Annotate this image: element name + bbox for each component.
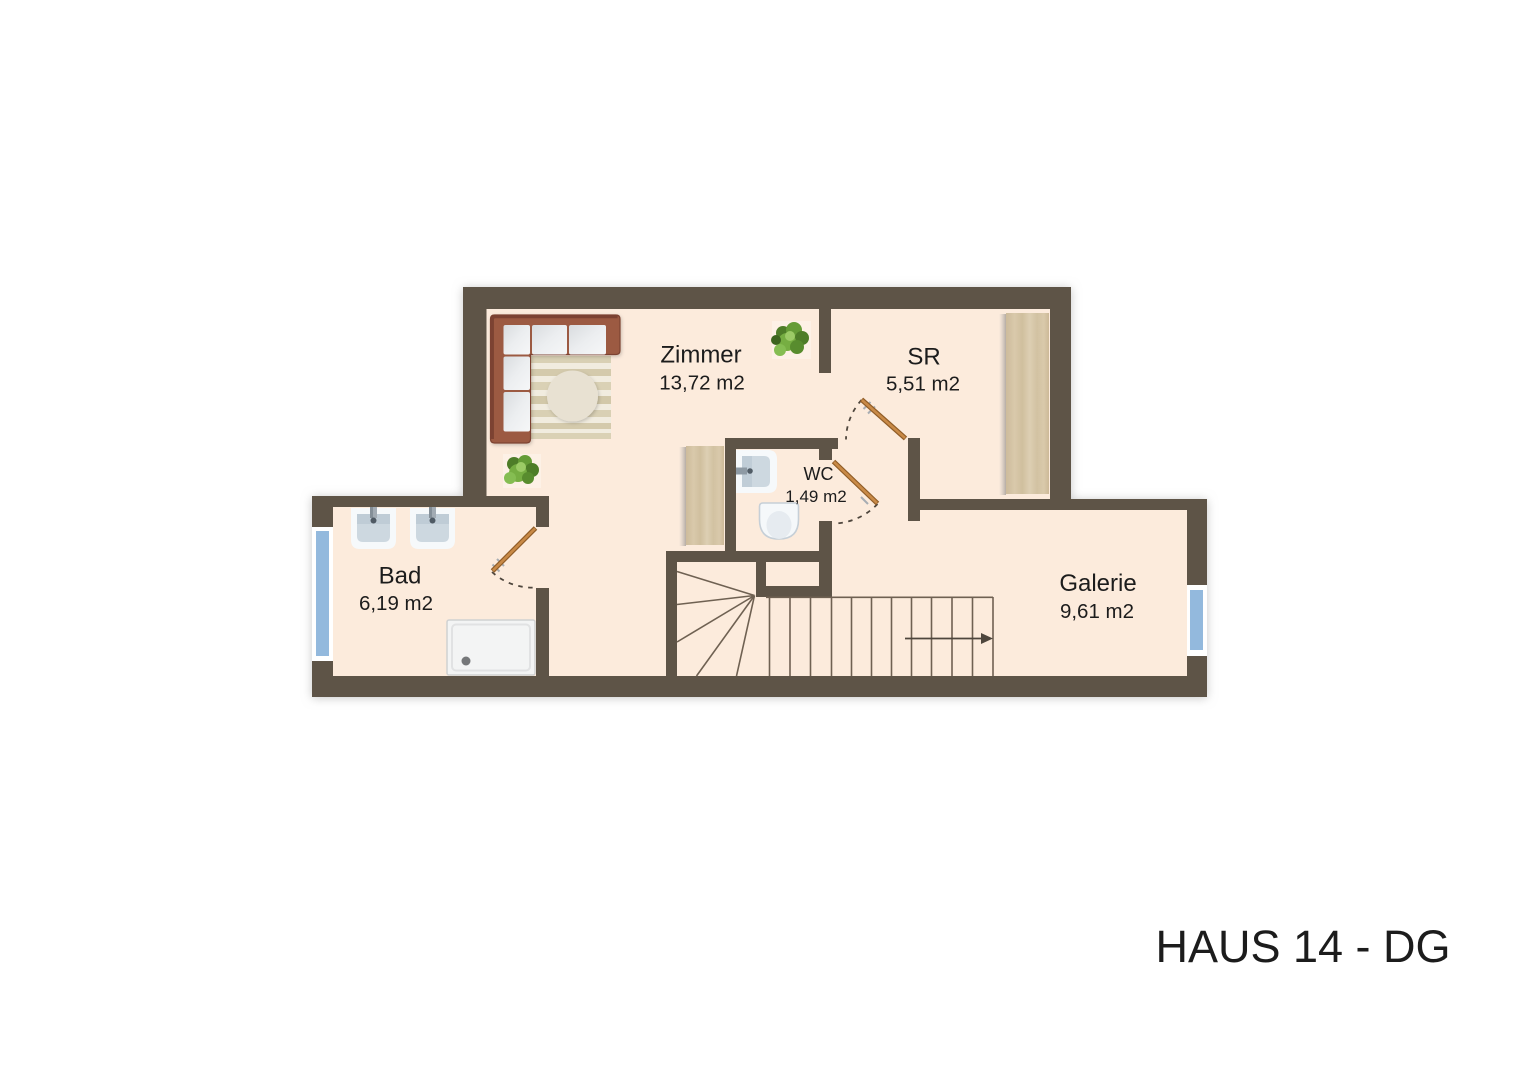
svg-text:Zimmer: Zimmer [660,342,741,369]
svg-text:HAUS 14 - DG: HAUS 14 - DG [1155,921,1450,972]
svg-text:9,61 m2: 9,61 m2 [1060,600,1134,623]
svg-text:SR: SR [907,344,940,371]
svg-text:5,51 m2: 5,51 m2 [886,373,960,396]
svg-text:1,49 m2: 1,49 m2 [785,487,846,506]
svg-text:Galerie: Galerie [1059,570,1136,597]
svg-text:13,72 m2: 13,72 m2 [659,371,744,394]
svg-text:6,19 m2: 6,19 m2 [359,592,433,615]
svg-text:WC: WC [804,464,834,484]
svg-text:Bad: Bad [379,563,422,590]
